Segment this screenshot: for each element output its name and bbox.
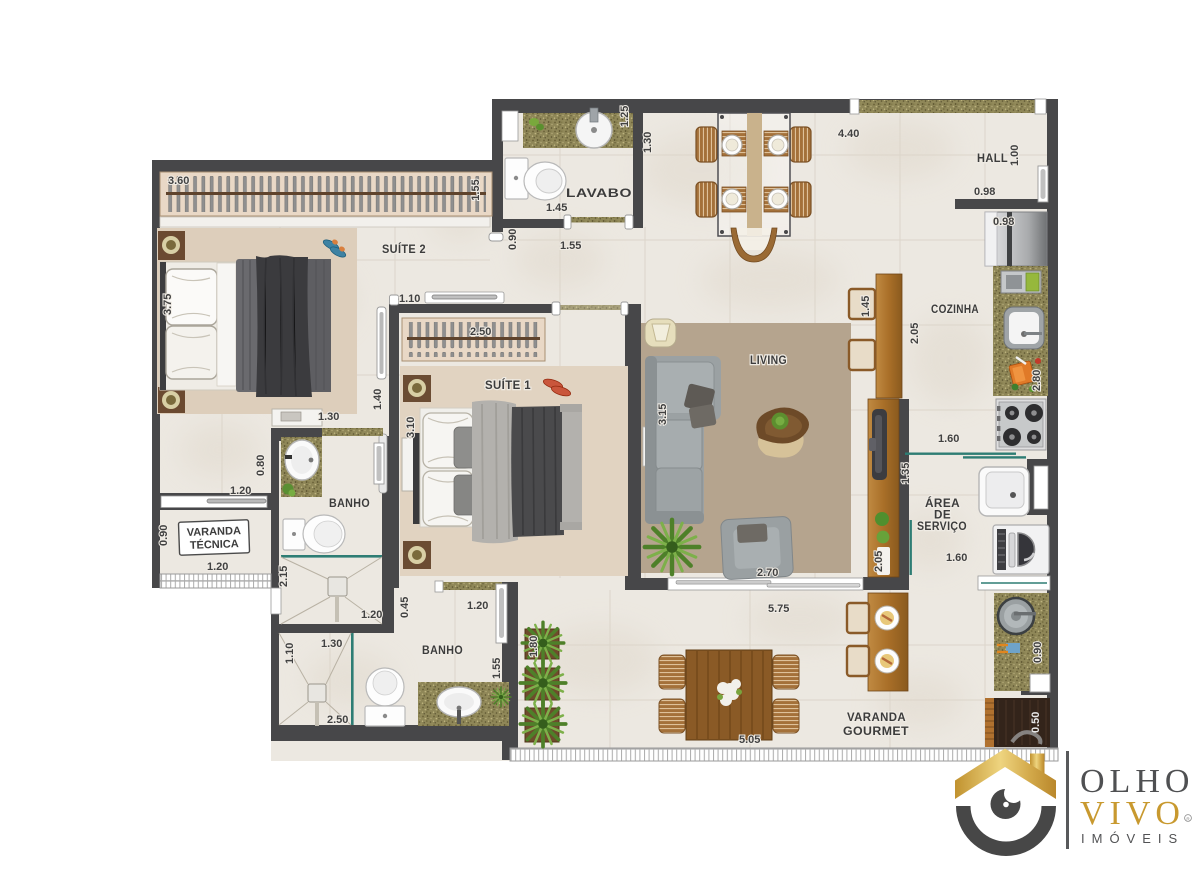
svg-text:2.70: 2.70 [757,567,778,579]
svg-text:2.05: 2.05 [909,323,921,344]
svg-text:1.20: 1.20 [467,600,488,612]
svg-text:GOURMET: GOURMET [843,726,909,738]
svg-text:1.10: 1.10 [284,643,296,664]
svg-text:2.80: 2.80 [1031,370,1043,391]
svg-text:1.00: 1.00 [1009,145,1021,166]
svg-text:SUÍTE 1: SUÍTE 1 [485,379,531,392]
svg-text:VARANDA: VARANDA [187,525,242,539]
svg-text:IMÓVEIS: IMÓVEIS [1081,831,1184,846]
svg-text:LIVING: LIVING [750,355,787,367]
svg-text:1.60: 1.60 [946,552,967,564]
svg-text:1.55: 1.55 [491,658,503,679]
svg-text:1.30: 1.30 [318,411,339,423]
svg-text:1.30: 1.30 [642,132,654,153]
svg-text:1.25: 1.25 [619,106,631,127]
svg-text:BANHO: BANHO [422,645,463,657]
svg-text:1.35: 1.35 [900,463,912,484]
svg-text:1.45: 1.45 [546,202,567,214]
svg-text:1.60: 1.60 [938,433,959,445]
svg-text:VARANDA: VARANDA [847,712,906,724]
svg-text:1.20: 1.20 [230,485,251,497]
svg-text:2.15: 2.15 [278,566,290,587]
svg-text:1.20: 1.20 [207,561,228,573]
svg-text:0.90: 0.90 [158,525,170,546]
svg-text:0.50: 0.50 [1030,712,1042,733]
svg-text:3.60: 3.60 [168,175,189,187]
svg-text:2.50: 2.50 [470,326,491,338]
svg-text:1.55: 1.55 [560,240,581,252]
svg-text:3.75: 3.75 [162,294,174,315]
svg-text:2.50: 2.50 [327,714,348,726]
svg-text:VIVO: VIVO [1080,795,1185,832]
svg-text:1.45: 1.45 [860,296,872,317]
svg-text:HALL: HALL [977,153,1008,165]
svg-text:0.80: 0.80 [255,455,267,476]
svg-text:0.90: 0.90 [507,229,519,250]
svg-text:0.45: 0.45 [399,597,411,618]
svg-text:3.15: 3.15 [657,404,669,425]
svg-text:3.10: 3.10 [405,417,417,438]
svg-text:5.05: 5.05 [739,734,760,746]
svg-text:ÁREA: ÁREA [925,497,960,510]
svg-text:0.98: 0.98 [993,216,1014,228]
svg-text:4.40: 4.40 [838,128,859,140]
svg-text:1.40: 1.40 [372,389,384,410]
svg-text:TÉCNICA: TÉCNICA [190,537,239,552]
svg-text:LAVABO: LAVABO [566,188,632,200]
svg-text:1.10: 1.10 [399,293,420,305]
svg-text:SUÍTE 2: SUÍTE 2 [382,243,426,256]
svg-text:2.05: 2.05 [873,551,885,572]
svg-text:0.90: 0.90 [1032,642,1044,663]
svg-text:BANHO: BANHO [329,498,370,510]
svg-text:1.30: 1.30 [321,638,342,650]
svg-text:1.20: 1.20 [361,609,382,621]
svg-text:5.75: 5.75 [768,603,789,615]
svg-text:1.55: 1.55 [470,179,482,200]
svg-text:0.98: 0.98 [974,186,995,198]
svg-text:COZINHA: COZINHA [931,304,979,316]
svg-text:1.80: 1.80 [528,636,540,657]
svg-text:DE: DE [934,510,951,522]
svg-text:SERVIÇO: SERVIÇO [917,521,967,533]
